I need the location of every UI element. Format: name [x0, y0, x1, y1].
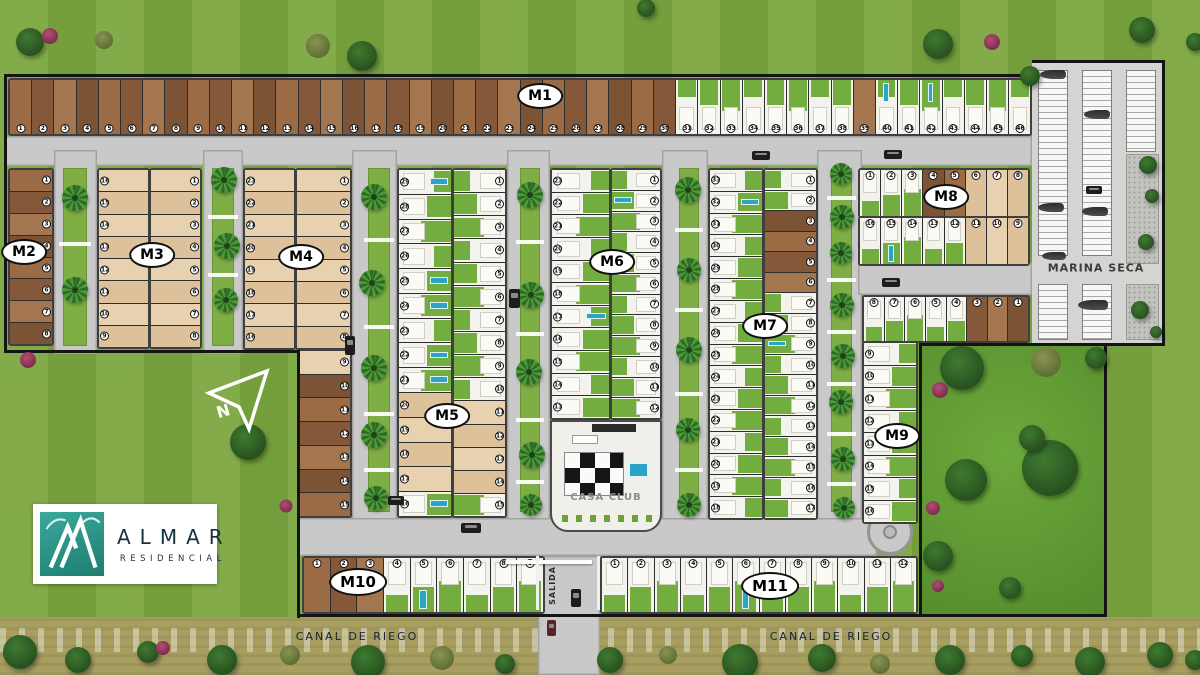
lot-number: 10 — [216, 124, 225, 133]
lot-number: 13 — [495, 454, 504, 463]
lot-number: 15 — [495, 501, 504, 510]
lot-number: 22 — [400, 351, 409, 360]
palm-tree-icon — [361, 422, 387, 448]
lot-number: 6 — [495, 292, 504, 301]
lot: 21 — [710, 432, 762, 454]
lot-number: 24 — [400, 301, 409, 310]
lot-number: 3 — [340, 221, 349, 230]
tree-icon — [306, 34, 330, 58]
crosswalk — [675, 392, 703, 396]
lot-number: 45 — [993, 124, 1002, 133]
palm-tree-icon — [676, 418, 700, 442]
lot: 6 — [765, 273, 816, 294]
boat-rack — [1126, 70, 1156, 152]
lot-yard — [439, 581, 461, 612]
pool — [430, 302, 449, 309]
lot-number: 3 — [806, 216, 815, 225]
lot-yard — [765, 356, 781, 373]
cul-de-sac-island — [883, 525, 897, 539]
lot-yard — [927, 327, 944, 341]
lot: 10 — [99, 304, 148, 326]
lot-number: 14 — [340, 476, 349, 485]
lot: 22 — [476, 80, 498, 134]
car-icon — [345, 336, 355, 355]
lot: 16 — [99, 170, 148, 192]
pool — [741, 199, 760, 205]
boundary-line — [1032, 60, 1165, 63]
lot-number: 8 — [495, 339, 504, 348]
lot-number: 6 — [127, 124, 136, 133]
block-label-m5: M5 — [424, 403, 470, 429]
lot: 4 — [454, 239, 505, 262]
block-label-m6: M6 — [589, 249, 635, 275]
lot-yard — [899, 479, 916, 498]
checkered-pad-icon — [564, 452, 624, 496]
lot-yard — [892, 502, 916, 521]
lot-number: 2 — [340, 199, 349, 208]
lot-yard — [576, 285, 609, 304]
lot: 45 — [987, 80, 1009, 134]
lot-number: 4 — [392, 559, 401, 568]
lot: 30 — [654, 80, 676, 134]
lot-number: 28 — [616, 124, 625, 133]
lot: 1 — [151, 170, 200, 192]
lot-yard — [454, 194, 477, 213]
tree-icon — [940, 346, 984, 390]
canal-label-left: CANAL DE RIEGO — [296, 630, 419, 643]
lot-yard — [612, 379, 634, 396]
casa-club-building — [592, 424, 636, 432]
lot: 1 — [602, 558, 628, 612]
bush-icon — [984, 34, 1000, 50]
lot-number: 11 — [100, 287, 109, 296]
lot: 10 — [612, 357, 660, 378]
tree-icon — [207, 645, 237, 675]
lot: 1 — [860, 170, 881, 216]
lot-yard — [886, 321, 903, 341]
crosswalk — [827, 330, 856, 334]
palm-tree-icon — [830, 293, 854, 317]
lot-number: 38 — [838, 124, 847, 133]
boat-rack — [1038, 284, 1068, 340]
lot-yard — [466, 595, 488, 612]
lot-yard — [732, 346, 762, 364]
lot-number: 17 — [553, 312, 562, 321]
lot: 11 — [765, 375, 816, 396]
tree-icon — [1085, 347, 1107, 369]
lot-number: 8 — [869, 298, 878, 307]
lot-number: 23 — [246, 176, 255, 185]
lot-number: 20 — [553, 244, 562, 253]
lot: 15 — [864, 478, 916, 501]
lot: 7 — [454, 309, 505, 332]
block-m5: 123456789101112131415 — [452, 168, 507, 518]
lot-yard — [946, 243, 963, 264]
crosswalk — [827, 278, 856, 282]
lot: 2 — [32, 80, 54, 134]
lot-yard — [576, 217, 609, 236]
palm-tree-icon — [831, 344, 855, 368]
lot: 23 — [498, 80, 520, 134]
north-arrow-icon: N — [203, 363, 281, 435]
lot: 46 — [1009, 80, 1030, 134]
lot-number: 31 — [682, 124, 691, 133]
marina-seca-label: MARINA SECA — [1048, 262, 1145, 275]
tree-icon — [870, 654, 890, 674]
lot-yard — [591, 375, 609, 394]
lot-number: 3 — [366, 559, 375, 568]
casa-club: CASA CLUB — [550, 420, 662, 532]
lot-number: 9 — [495, 362, 504, 371]
lot-yard — [683, 595, 704, 612]
tree-icon — [923, 29, 953, 59]
lot-number: 28 — [400, 202, 409, 211]
lot-number: 5 — [950, 171, 959, 180]
lot-number: 19 — [553, 267, 562, 276]
palm-tree-icon — [830, 242, 852, 264]
boundary-line — [1162, 60, 1165, 346]
lot-number: 32 — [711, 198, 720, 207]
lot: 11 — [966, 218, 987, 264]
median — [368, 168, 390, 512]
lot-number: 12 — [260, 124, 269, 133]
lot: 6 — [297, 282, 350, 304]
lot: 16 — [864, 501, 916, 523]
pool — [768, 341, 786, 346]
lot-number: 3 — [663, 559, 672, 568]
bush-icon — [926, 501, 940, 515]
lot: 9 — [612, 336, 660, 357]
lot-yard — [700, 80, 718, 105]
bush-icon — [42, 28, 58, 44]
lot-number: 7 — [42, 307, 51, 316]
shrub-icon — [590, 515, 596, 522]
lot-yard — [630, 587, 651, 612]
lot-yard — [454, 310, 470, 329]
lot-number: 9 — [820, 559, 829, 568]
palm-tree-icon — [833, 497, 855, 519]
lot: 3 — [765, 211, 816, 232]
lot-yard — [583, 194, 609, 213]
lot-number: 42 — [926, 124, 935, 133]
pool — [586, 313, 607, 319]
lot: 28 — [399, 195, 451, 220]
lot: 3 — [454, 216, 505, 239]
block-label-m2: M2 — [1, 239, 47, 265]
lot-number: 14 — [100, 221, 109, 230]
pool — [928, 83, 934, 102]
lot-number: 4 — [952, 298, 961, 307]
lot-number: 1 — [866, 171, 875, 180]
lot: 7 — [612, 295, 660, 316]
lot-yard — [583, 330, 609, 349]
lot-number: 11 — [340, 405, 349, 414]
lot-number: 21 — [711, 438, 720, 447]
lot: 15 — [552, 351, 609, 374]
casa-club-shrubs — [562, 515, 652, 522]
lot-number: 19 — [416, 124, 425, 133]
lot: 7 — [297, 304, 350, 326]
lot-yard — [833, 80, 851, 105]
lot: 4 — [947, 297, 968, 341]
lot-number: 26 — [400, 252, 409, 261]
lot: 4 — [384, 558, 411, 612]
lot: 9 — [99, 326, 148, 347]
lot: 9 — [1008, 218, 1028, 264]
lot-number: 29 — [400, 177, 409, 186]
lot: 10 — [838, 558, 864, 612]
lot: 9 — [517, 558, 543, 612]
lot-number: 34 — [749, 124, 758, 133]
tree-icon — [1145, 189, 1159, 203]
lot: 20 — [710, 454, 762, 476]
lot-number: 16 — [246, 333, 255, 342]
lot-number: 17 — [806, 504, 815, 513]
lot: 14 — [299, 80, 321, 134]
tree-icon — [280, 645, 300, 665]
lot: 4 — [681, 558, 707, 612]
lot: 6 — [121, 80, 143, 134]
lot-yard — [738, 389, 762, 407]
lot: 32 — [710, 192, 762, 214]
lot: 11 — [864, 388, 916, 411]
lot-number: 25 — [549, 124, 558, 133]
lot: 21 — [552, 215, 609, 238]
lot: 18 — [245, 282, 294, 304]
lot-number: 11 — [873, 559, 882, 568]
lot-yard — [765, 479, 781, 496]
gate-post — [597, 556, 600, 610]
pool — [888, 245, 894, 262]
lot-yard — [811, 80, 829, 97]
lot-yard — [765, 171, 781, 188]
lot: 5 — [707, 558, 733, 612]
lot: 3 — [297, 215, 350, 237]
car-icon — [882, 278, 900, 287]
lot-yard — [612, 358, 627, 375]
lot-number: 11 — [865, 394, 874, 403]
lot: 26 — [399, 244, 451, 269]
lot: 8 — [864, 297, 885, 341]
lot: 36 — [787, 80, 809, 134]
lot-yard — [948, 321, 965, 341]
lot: 8 — [454, 332, 505, 355]
block-m6: 123456789101112 — [610, 168, 662, 420]
lot: 29 — [710, 257, 762, 279]
lot-number: 17 — [400, 475, 409, 484]
lot-number: 24 — [527, 124, 536, 133]
lot-number: 5 — [495, 269, 504, 278]
car-icon — [884, 150, 902, 159]
lot: 13 — [923, 218, 944, 264]
lot: 24 — [399, 294, 451, 319]
lot: 21 — [454, 80, 476, 134]
pool — [419, 590, 426, 609]
bush-icon — [932, 580, 944, 592]
lot: 15 — [299, 493, 350, 516]
lot-number: 14 — [553, 380, 562, 389]
lot-number: 17 — [371, 124, 380, 133]
tree-icon — [597, 647, 623, 673]
palm-tree-icon — [677, 493, 701, 517]
lot: 12 — [454, 425, 505, 448]
lot-number: 21 — [460, 124, 469, 133]
lot-yard — [904, 189, 921, 216]
lot: 11 — [612, 378, 660, 399]
lot-number: 22 — [482, 124, 491, 133]
block-label-m11: M11 — [741, 572, 799, 600]
lot-yard — [892, 367, 916, 386]
lot-number: 7 — [190, 310, 199, 319]
lot-number: 30 — [660, 124, 669, 133]
pool — [430, 178, 449, 185]
tree-icon — [722, 644, 758, 675]
lot-number: 43 — [949, 124, 958, 133]
lot: 3 — [151, 215, 200, 237]
crosswalk — [364, 468, 394, 472]
lot-number: 8 — [190, 332, 199, 341]
lot: 23 — [245, 170, 294, 192]
lot-number: 19 — [400, 425, 409, 434]
lot-number: 7 — [472, 559, 481, 568]
lot-number: 2 — [495, 200, 504, 209]
lot-number: 20 — [246, 243, 255, 252]
palm-tree-icon — [361, 355, 387, 381]
lot: 5 — [454, 263, 505, 286]
lot: 9 — [864, 343, 916, 366]
lot-number: 9 — [194, 124, 203, 133]
lot-number: 8 — [806, 319, 815, 328]
lot-number: 15 — [553, 357, 562, 366]
lot-number: 22 — [553, 199, 562, 208]
block-label-m3: M3 — [129, 242, 175, 268]
lot-yard — [657, 581, 678, 612]
lot-number: 10 — [865, 372, 874, 381]
lot: 18 — [710, 497, 762, 518]
lot-number: 13 — [340, 453, 349, 462]
palm-tree-icon — [677, 258, 701, 282]
lot-number: 1 — [340, 176, 349, 185]
lot-number: 11 — [806, 381, 815, 390]
palm-tree-icon — [211, 167, 237, 193]
lot-number: 7 — [340, 310, 349, 319]
lot-number: 8 — [1013, 171, 1022, 180]
lot: 29 — [399, 170, 451, 195]
lot: 6 — [454, 286, 505, 309]
lot-yard — [738, 258, 762, 276]
block-m4: 9101112131415 — [297, 349, 352, 518]
lot-number: 13 — [929, 219, 938, 228]
lot: 5 — [765, 252, 816, 273]
crosswalk — [516, 332, 544, 336]
boundary-line — [297, 614, 922, 617]
lot-number: 2 — [806, 196, 815, 205]
lot-number: 40 — [882, 124, 891, 133]
tree-icon — [16, 28, 44, 56]
lot: 17 — [552, 306, 609, 329]
block-m6: 2322212019181716151413 — [550, 168, 611, 420]
lot-yard — [612, 171, 627, 188]
lot-number: 12 — [100, 265, 109, 274]
lot: 13 — [765, 416, 816, 437]
lot-yard — [886, 457, 916, 476]
lot-number: 5 — [650, 258, 659, 267]
lot-yard — [454, 171, 470, 190]
lot: 10 — [987, 218, 1008, 264]
lot-number: 13 — [806, 422, 815, 431]
lot-number: 12 — [495, 431, 504, 440]
lot-yard — [765, 500, 788, 517]
lot-number: 7 — [806, 298, 815, 307]
lot-number: 14 — [908, 219, 917, 228]
lot-number: 5 — [340, 266, 349, 275]
palm-tree-icon — [518, 282, 544, 308]
lot: 1 — [454, 170, 505, 193]
lot: 6 — [10, 279, 52, 301]
lot-number: 39 — [860, 124, 869, 133]
crosswalk — [827, 482, 856, 486]
lot: 6 — [151, 281, 200, 303]
lot-number: 13 — [865, 439, 874, 448]
lot-number: 6 — [340, 288, 349, 297]
lot-number: 1 — [650, 175, 659, 184]
lot: 14 — [552, 374, 609, 397]
lot-number: 18 — [400, 450, 409, 459]
lot-number: 23 — [711, 394, 720, 403]
lot-number: 14 — [865, 462, 874, 471]
lot: 4 — [765, 232, 816, 253]
palm-tree-icon — [516, 359, 542, 385]
lot: 31 — [676, 80, 698, 134]
lot-number: 10 — [846, 559, 855, 568]
lot-number: 10 — [100, 310, 109, 319]
lot-yard — [612, 296, 627, 313]
lot: 7 — [987, 170, 1008, 216]
lot: 7 — [765, 293, 816, 314]
tree-icon — [1019, 425, 1045, 451]
tree-icon — [1139, 156, 1157, 174]
lot-number: 44 — [971, 124, 980, 133]
lot-yard — [745, 368, 762, 386]
pool — [883, 83, 889, 102]
lot-number: 7 — [768, 559, 777, 568]
lot-number: 9 — [340, 358, 349, 367]
lot-number: 10 — [992, 219, 1001, 228]
lot-number: 15 — [327, 124, 336, 133]
lot: 11 — [865, 558, 891, 612]
lot: 7 — [10, 301, 52, 323]
lot-number: 19 — [246, 266, 255, 275]
lot-number: 2 — [636, 559, 645, 568]
lot-number: 4 — [806, 237, 815, 246]
lot: 14 — [454, 471, 505, 494]
lot: 27 — [399, 220, 451, 245]
lot-yard — [904, 237, 921, 264]
lot-number: 22 — [246, 199, 255, 208]
car-icon — [547, 620, 556, 636]
lot: 2 — [10, 192, 52, 214]
lot: 18 — [399, 443, 451, 468]
lot-number: 3 — [650, 217, 659, 226]
shrub-icon — [604, 515, 610, 522]
lot-number: 22 — [711, 416, 720, 425]
lot-number: 8 — [42, 329, 51, 338]
lot: 8 — [10, 323, 52, 344]
lot-number: 15 — [887, 219, 896, 228]
palm-tree-icon — [519, 442, 545, 468]
lot-yard — [678, 80, 696, 97]
palm-tree-icon — [520, 494, 542, 516]
